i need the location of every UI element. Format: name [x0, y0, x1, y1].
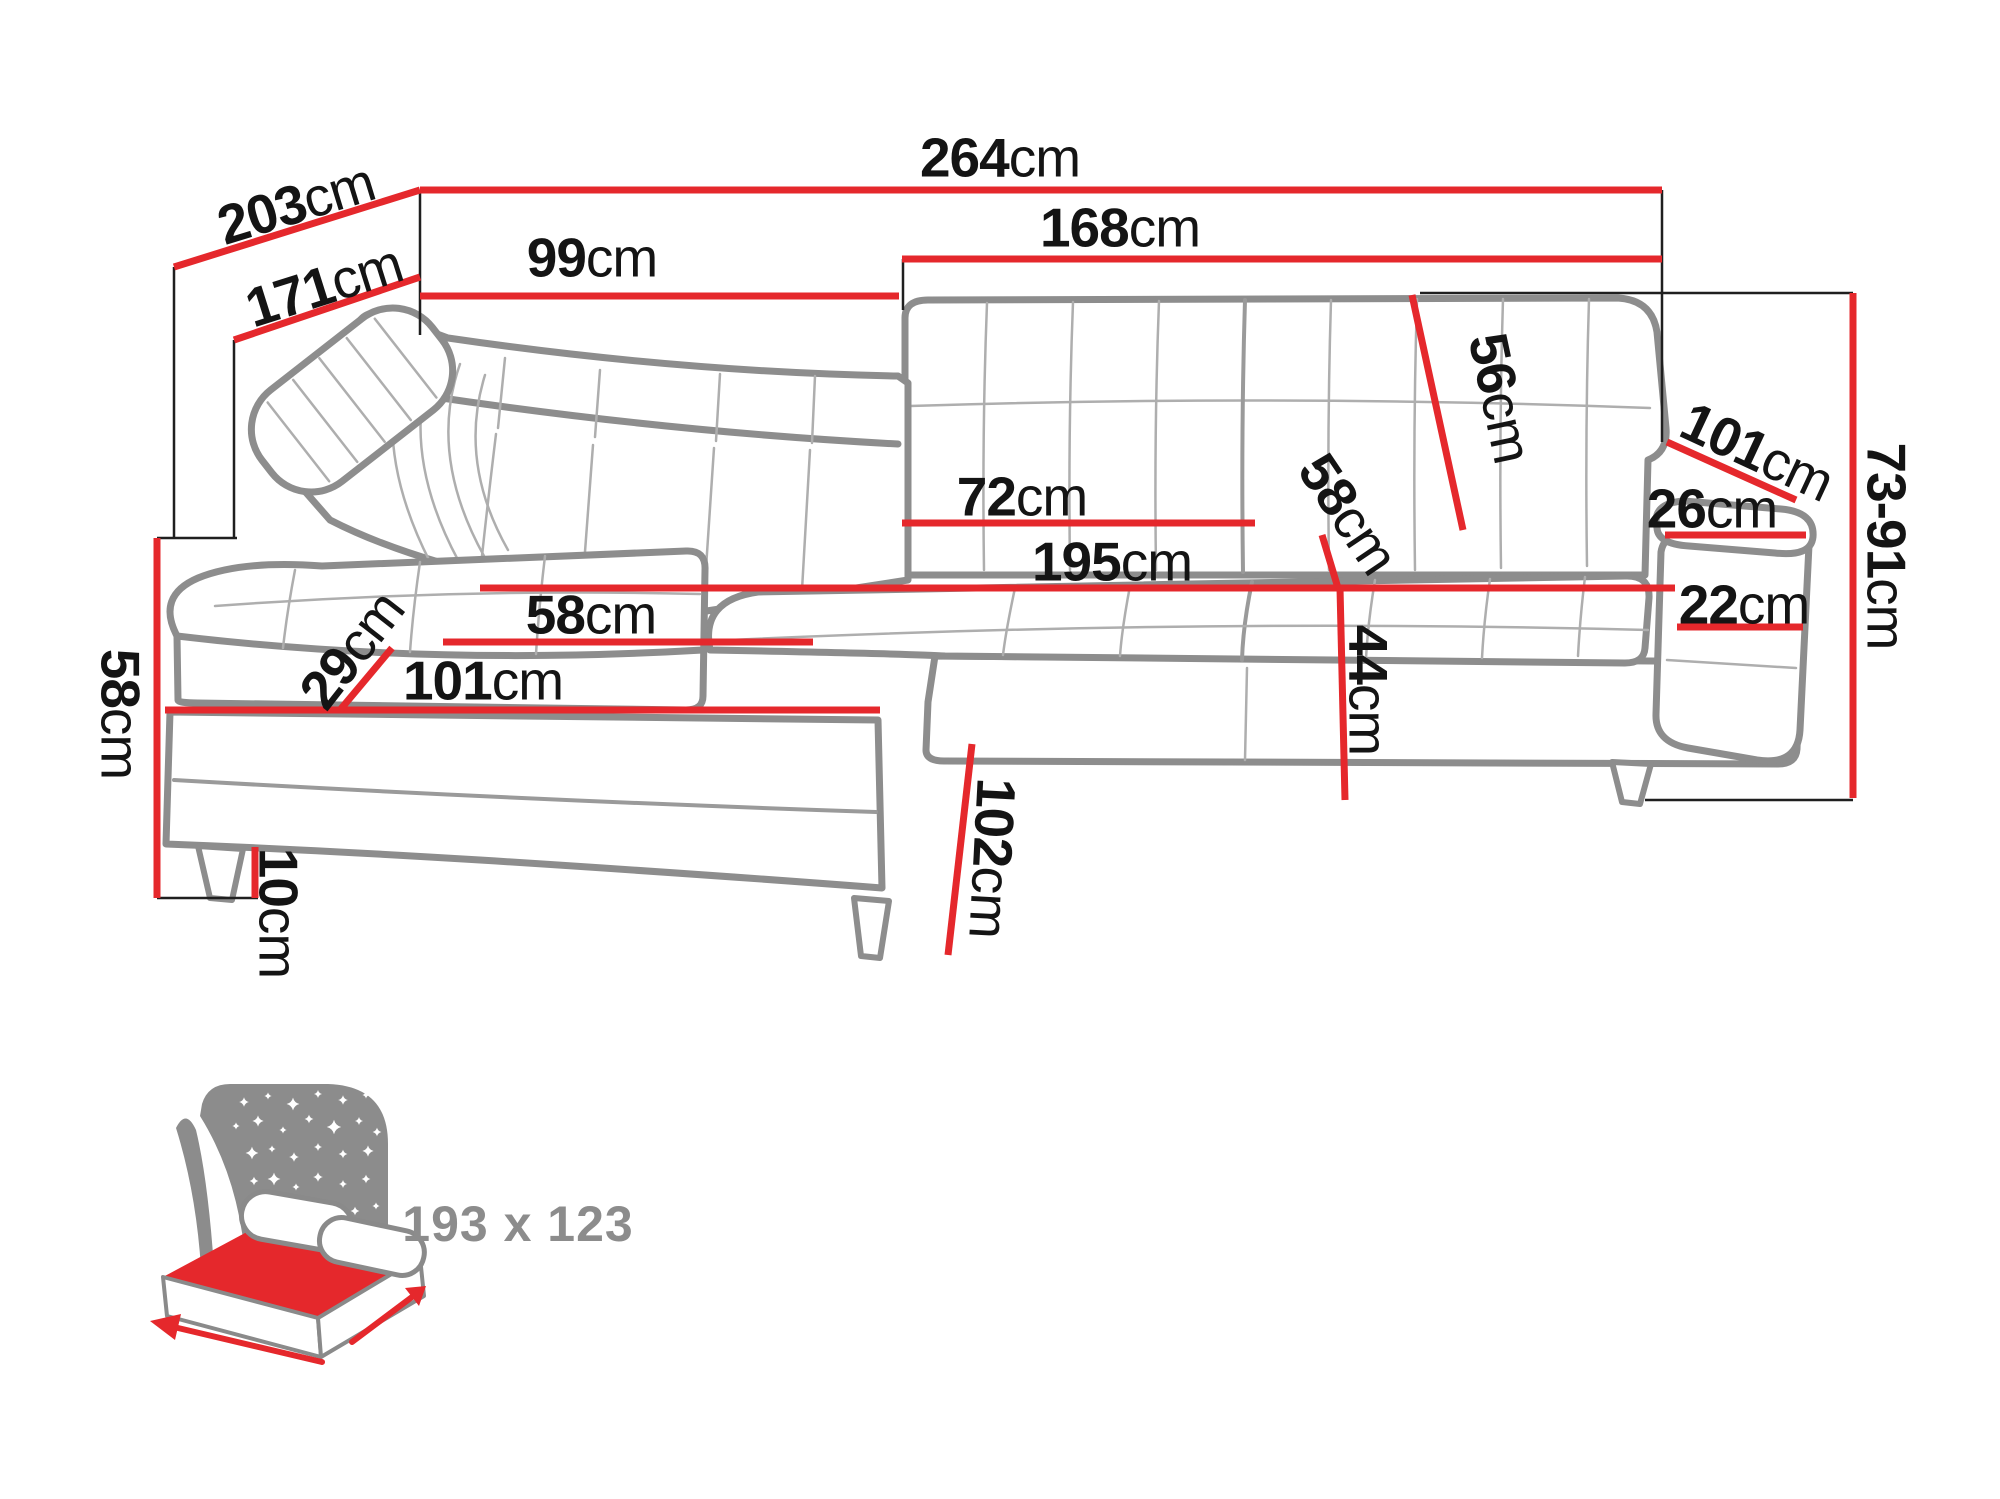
- sleeping-function-icon: [150, 1084, 428, 1362]
- label-total-width: 264cm: [920, 131, 1080, 186]
- label-side-height: 58cm: [93, 649, 148, 780]
- label-back-section-width: 99cm: [527, 231, 658, 286]
- moon-swoosh: [176, 1118, 214, 1268]
- sofa-dimension-diagram: 264cm 168cm 99cm 203cm 171cm 56cm 101cm …: [0, 0, 2000, 1499]
- label-seat-total-width: 195cm: [1032, 535, 1192, 590]
- label-chaise-seat-width: 58cm: [526, 588, 657, 643]
- sleeping-area-size-label: 193 x 123: [402, 1199, 633, 1249]
- label-armrest-front-width: 22cm: [1679, 578, 1810, 633]
- sofa-leg-right: [1612, 762, 1651, 804]
- armrest-body: [1656, 529, 1809, 761]
- label-leg-height: 10cm: [251, 848, 306, 979]
- sofa-back-panel: [905, 298, 1666, 575]
- label-seat-cushion-width: 72cm: [957, 470, 1088, 525]
- length-arrowhead: [150, 1314, 181, 1340]
- label-chaise-front-depth: 102cm: [960, 777, 1023, 940]
- label-seat-height: 44cm: [1341, 625, 1396, 756]
- sofa-leg-front-left: [198, 846, 243, 900]
- label-right-section-width: 168cm: [1040, 201, 1200, 256]
- label-armrest-top-width: 26cm: [1647, 482, 1778, 537]
- sofa-leg-chaise-right: [854, 898, 889, 958]
- label-chaise-length: 101cm: [403, 654, 563, 709]
- label-height-range: 73-91cm: [1859, 443, 1914, 650]
